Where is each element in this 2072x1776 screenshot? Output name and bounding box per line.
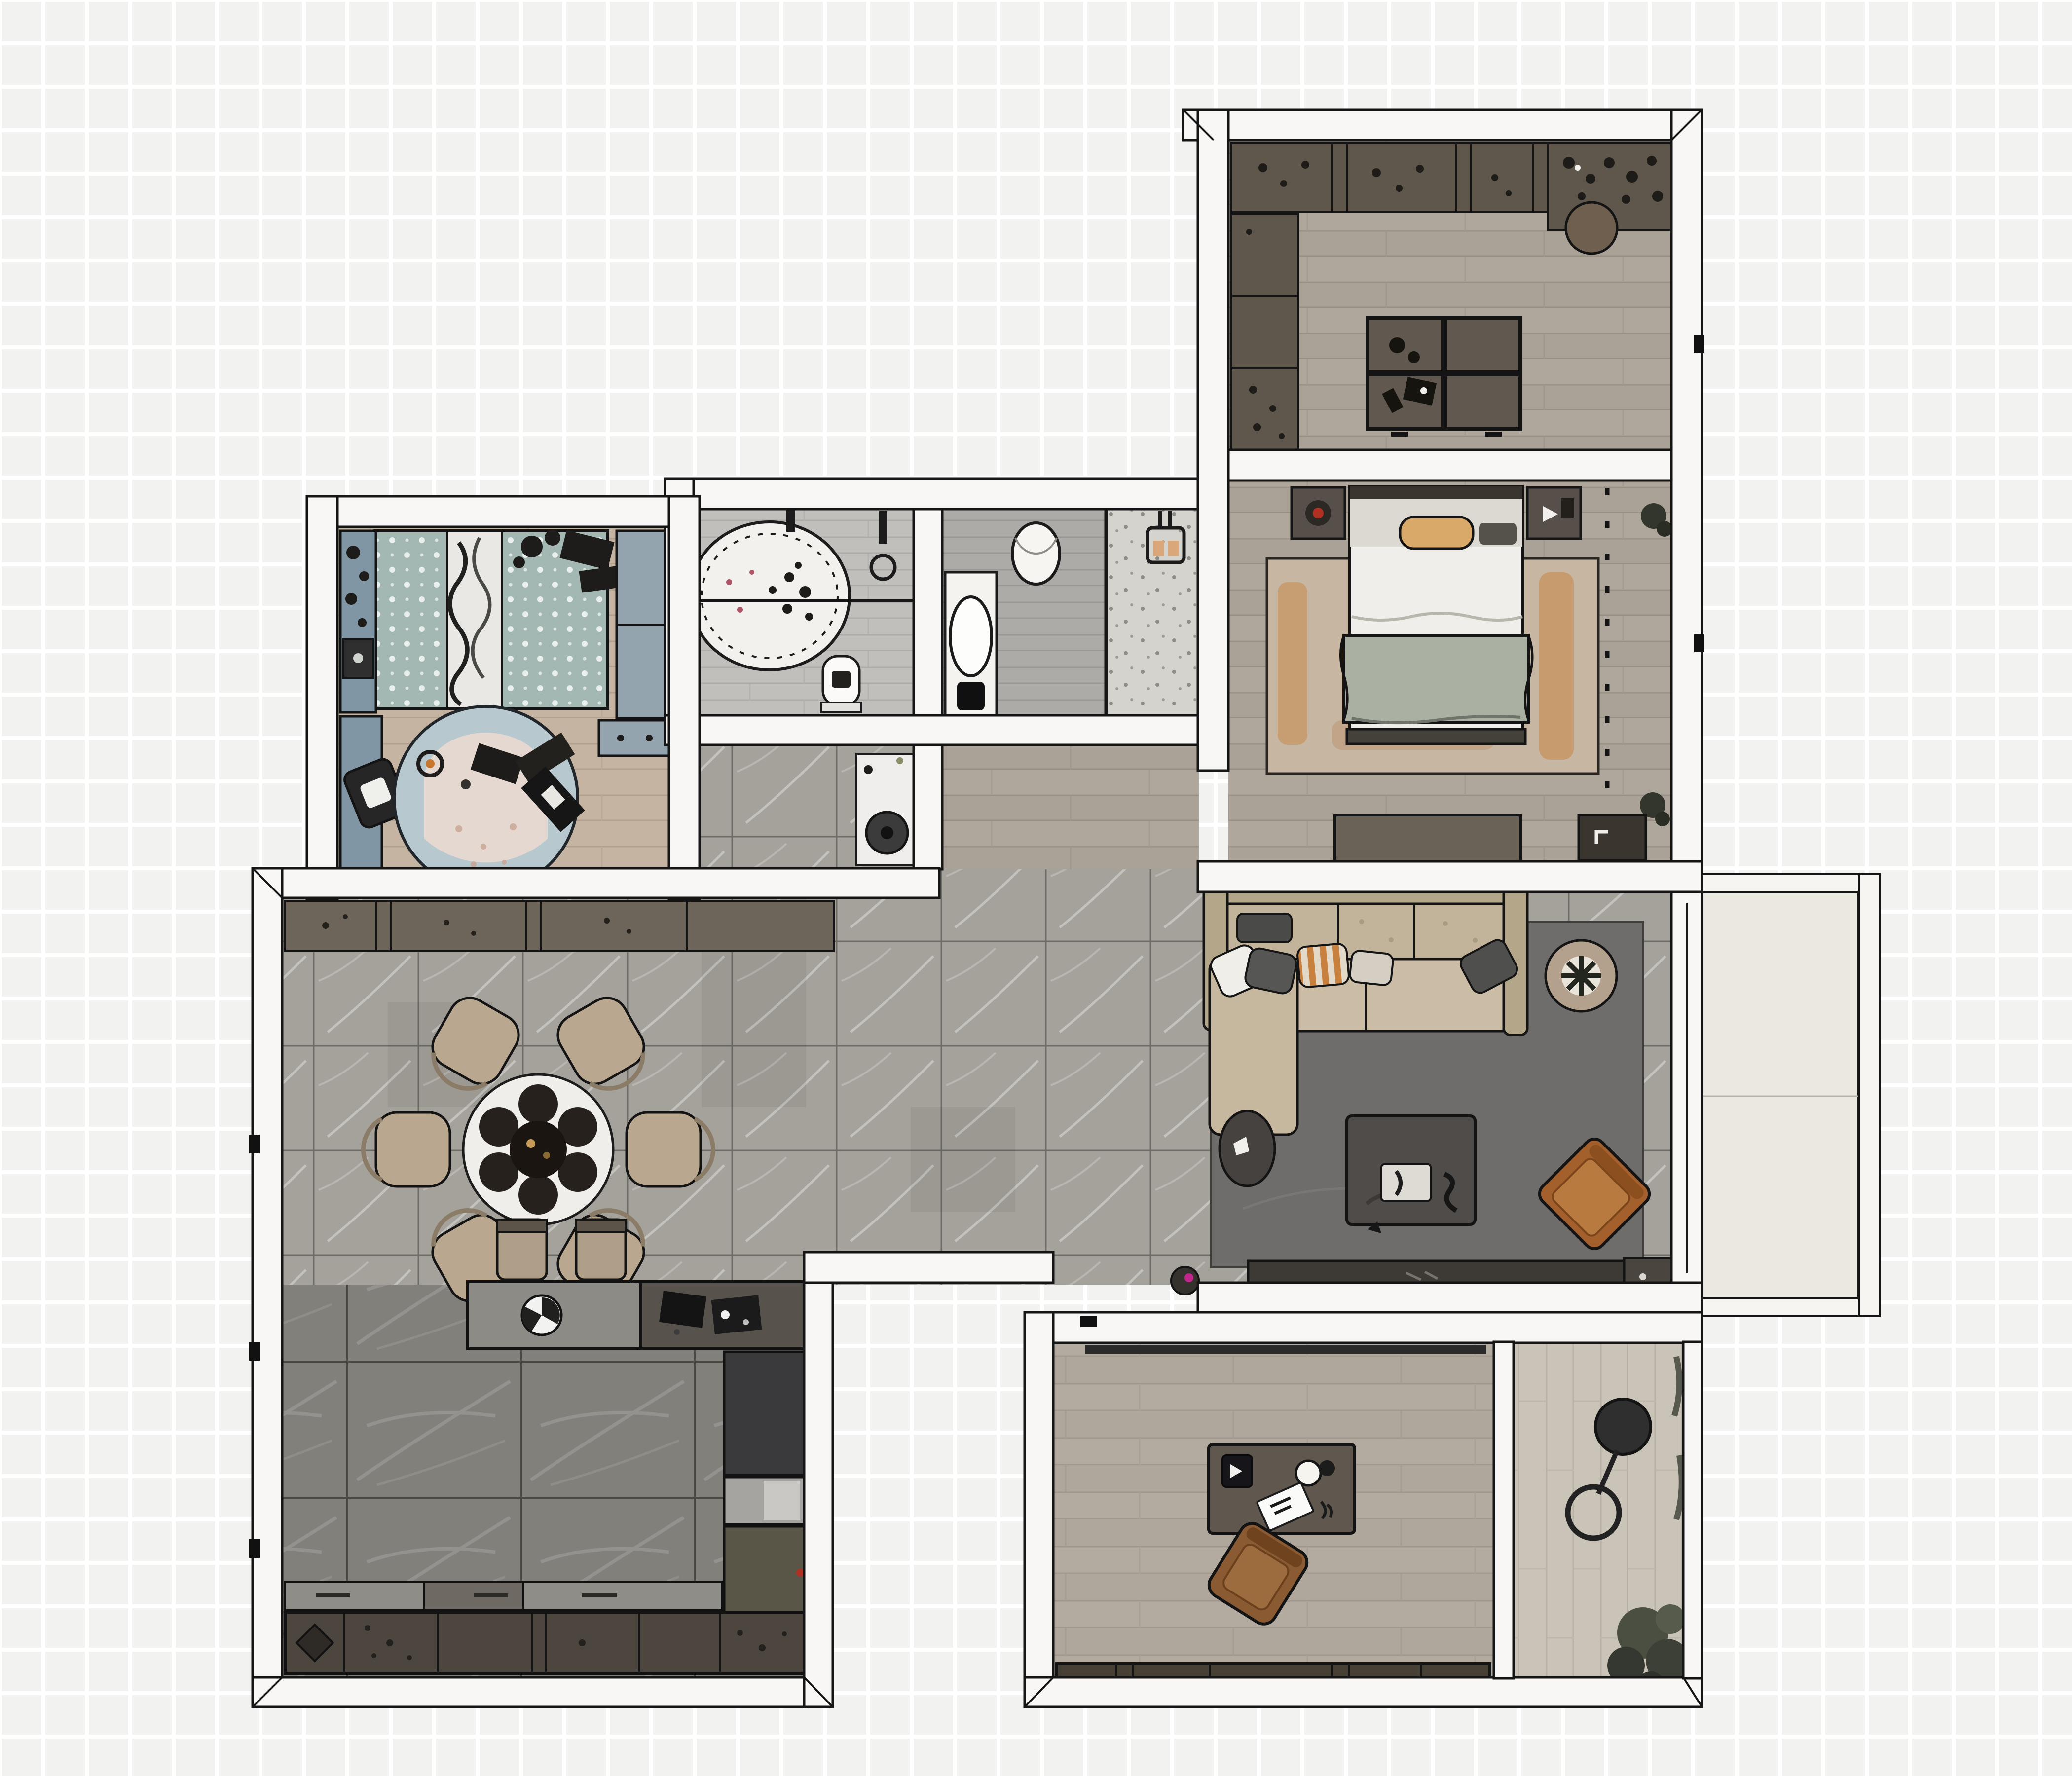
side-table xyxy=(1220,1111,1275,1186)
kids-shelf xyxy=(340,531,376,712)
living-pot xyxy=(1171,1267,1199,1295)
nightstand-right xyxy=(1527,487,1581,539)
wc-basin xyxy=(945,572,997,720)
office-sliding-track xyxy=(1085,1345,1486,1354)
book xyxy=(1381,1164,1431,1201)
bolster-pillow xyxy=(1400,517,1473,549)
wc-toilet xyxy=(1012,523,1060,584)
floor-plan xyxy=(0,0,2072,1776)
room-balcony xyxy=(1702,892,1859,1298)
bed-throw xyxy=(1344,635,1528,722)
bar-counter xyxy=(468,1282,804,1349)
bath-toilet xyxy=(821,656,861,712)
room-hallway xyxy=(942,745,1199,869)
closet-side-row xyxy=(1231,214,1298,450)
floor-plan-canvas xyxy=(0,0,2072,1776)
bed-bench xyxy=(1347,729,1525,744)
nightstand-left xyxy=(1292,487,1345,539)
coffee-table xyxy=(1347,1116,1475,1233)
office-desk xyxy=(1209,1444,1355,1533)
fridge xyxy=(724,1352,804,1475)
kids-bed xyxy=(375,530,636,708)
desk-lamp xyxy=(1296,1461,1321,1485)
closet-island xyxy=(1368,318,1520,434)
bedroom-dresser xyxy=(1335,815,1520,861)
bed xyxy=(1340,486,1532,744)
bedroom-mat xyxy=(1579,815,1646,860)
closet-stool xyxy=(1566,202,1617,254)
sideboard xyxy=(285,901,834,951)
living-plant xyxy=(1546,940,1617,1011)
